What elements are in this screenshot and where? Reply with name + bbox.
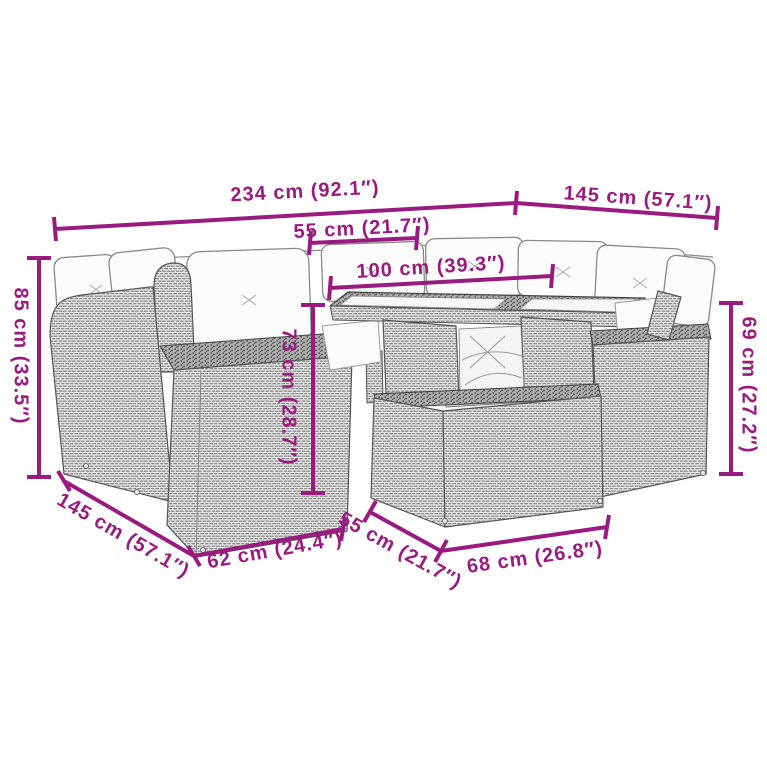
ottoman-front-face xyxy=(443,396,603,527)
left-seat-front-face xyxy=(167,356,352,557)
table-opening-interior xyxy=(459,326,524,394)
ottoman xyxy=(371,384,603,527)
seat-cushion-sliver-left xyxy=(322,320,381,370)
dimension-label-right-seat-height: 69 cm (27.2″) xyxy=(737,316,760,453)
ottoman-left-face xyxy=(371,398,445,527)
dimension-label-back-height: 85 cm (33.5″) xyxy=(9,287,32,424)
table-leg-left xyxy=(383,320,459,398)
table-leg-right xyxy=(521,317,594,391)
left-arm-panel xyxy=(50,287,173,502)
dimension-label-table-height: 73 cm (28.7″) xyxy=(277,328,300,465)
furniture-illustration xyxy=(0,0,767,767)
right-seat-front-face xyxy=(593,337,709,497)
product-dimension-diagram: 234 cm (92.1″) 145 cm (57.1″) 55 cm (21.… xyxy=(0,0,767,767)
